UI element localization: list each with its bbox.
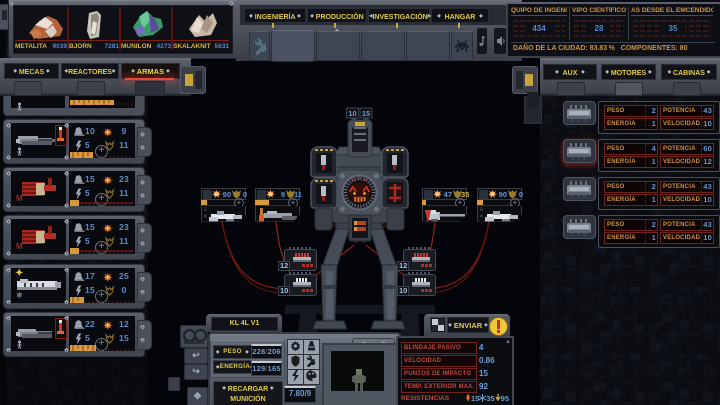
svg-text:28: 28 bbox=[595, 24, 604, 33]
svg-text:10: 10 bbox=[348, 109, 356, 118]
svg-text:35: 35 bbox=[669, 24, 678, 33]
svg-text:15: 15 bbox=[362, 109, 370, 118]
svg-text:434: 434 bbox=[532, 24, 546, 33]
